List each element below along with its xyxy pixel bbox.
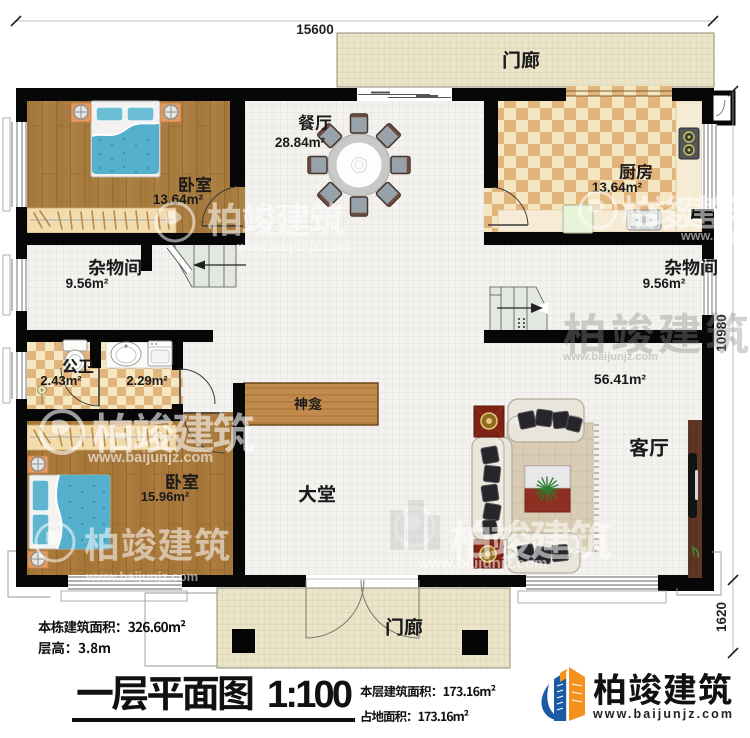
svg-text:1620: 1620 (714, 602, 729, 632)
svg-text:www.baijunjz.com: www.baijunjz.com (85, 569, 198, 584)
svg-text:2.43m²: 2.43m² (40, 373, 82, 388)
svg-text:www.baijunjz.com: www.baijunjz.com (417, 555, 547, 572)
svg-text:www.baijunjz.com: www.baijunjz.com (562, 351, 658, 363)
svg-text:56.41m²: 56.41m² (594, 371, 646, 387)
svg-text:15600: 15600 (296, 22, 334, 37)
svg-text:9.56m²: 9.56m² (643, 276, 686, 291)
svg-text:www.baijunjz.com: www.baijunjz.com (87, 450, 213, 466)
svg-text:15.96m²: 15.96m² (141, 489, 190, 504)
svg-text:28.84m²: 28.84m² (275, 135, 326, 150)
svg-text:www.baijunjz.com: www.baijunjz.com (680, 229, 750, 243)
svg-text:9.56m²: 9.56m² (66, 276, 109, 291)
svg-text:2.29m²: 2.29m² (126, 373, 168, 388)
svg-text:www.baijunjz.com: www.baijunjz.com (236, 239, 349, 254)
svg-text:www.baijunjz.com: www.baijunjz.com (592, 707, 732, 721)
svg-text:1:100: 1:100 (267, 674, 353, 716)
